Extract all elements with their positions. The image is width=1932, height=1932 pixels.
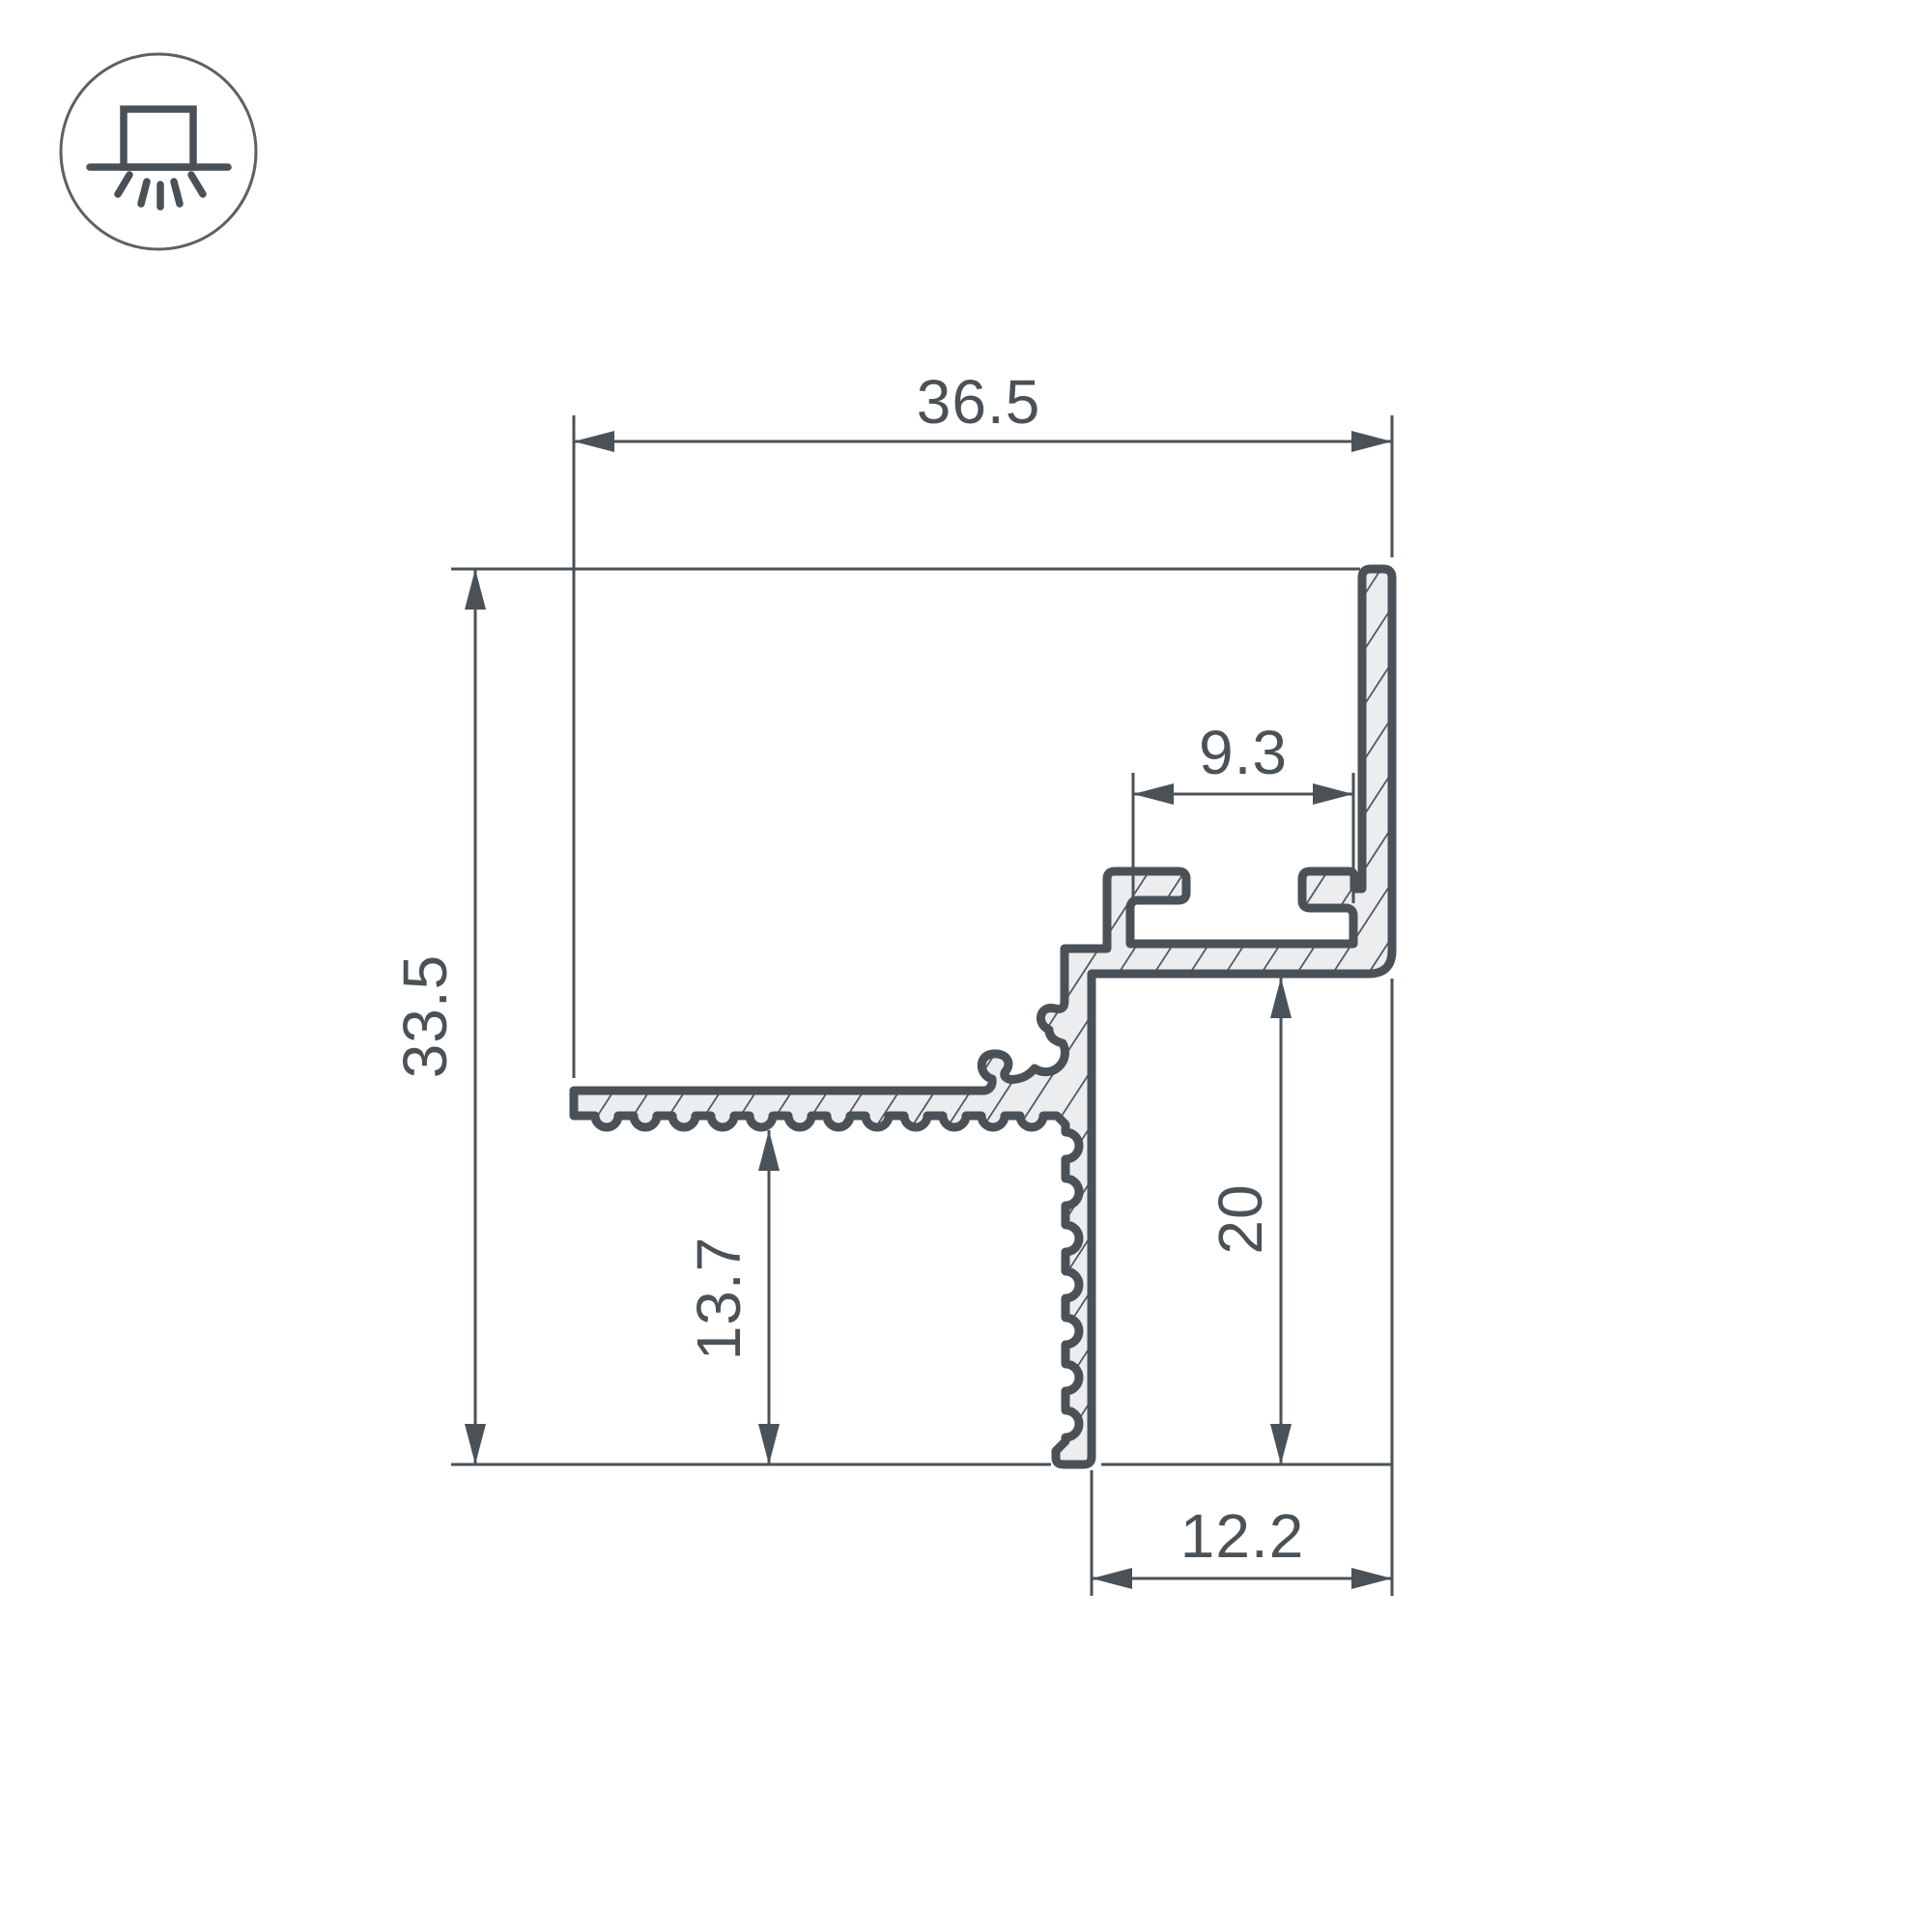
mount-type-icon bbox=[61, 54, 256, 249]
arrowhead-bottom bbox=[758, 1424, 780, 1464]
dimension-label: 33.5 bbox=[390, 954, 460, 1079]
drawing-canvas: 36.5 33.5 9.3 13.7 20 bbox=[0, 0, 1932, 1932]
icon-light-rays bbox=[118, 175, 203, 207]
dimension-label: 12.2 bbox=[1180, 1501, 1305, 1571]
icon-fixture-box bbox=[124, 109, 193, 167]
dimension-label: 9.3 bbox=[1199, 718, 1288, 787]
dimension-overall-height: 33.5 bbox=[390, 569, 1392, 1464]
arrowhead-right bbox=[1351, 1568, 1392, 1589]
dimension-recess-height: 20 bbox=[1206, 978, 1292, 1464]
arrowhead-bottom bbox=[465, 1424, 486, 1464]
arrowhead-right bbox=[1313, 783, 1353, 805]
icon-circle bbox=[61, 54, 256, 249]
arrowhead-left bbox=[574, 431, 614, 452]
dimension-flange-height: 13.7 bbox=[684, 1130, 780, 1464]
dimension-label: 13.7 bbox=[684, 1236, 753, 1361]
arrowhead-left bbox=[1133, 783, 1174, 805]
arrowhead-top bbox=[1270, 978, 1292, 1018]
dimension-label: 20 bbox=[1206, 1183, 1275, 1254]
dimension-bottom-width: 12.2 bbox=[1092, 979, 1392, 1596]
arrowhead-top bbox=[465, 569, 486, 610]
arrowhead-bottom bbox=[1270, 1424, 1292, 1464]
arrowhead-top bbox=[758, 1130, 780, 1171]
dimension-label: 36.5 bbox=[917, 367, 1041, 437]
arrowhead-right bbox=[1351, 431, 1392, 452]
arrowhead-left bbox=[1092, 1568, 1132, 1589]
profile-technical-drawing: 36.5 33.5 9.3 13.7 20 bbox=[0, 0, 1932, 1932]
